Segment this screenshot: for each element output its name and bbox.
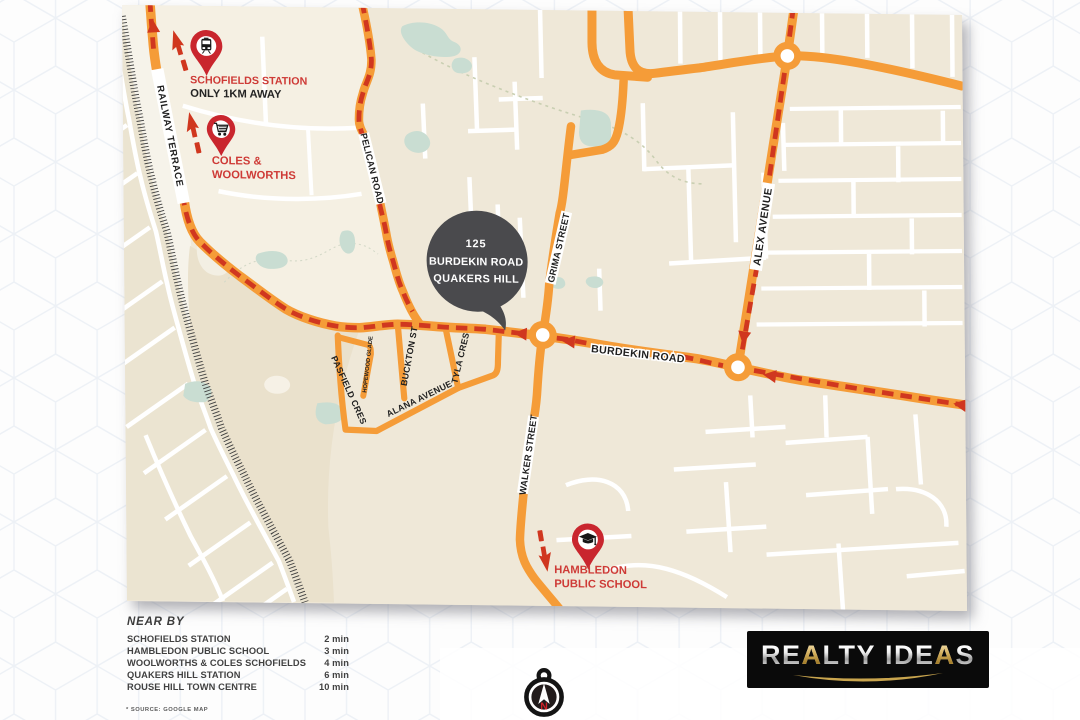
svg-text:WOOLWORTHS: WOOLWORTHS (212, 169, 297, 182)
svg-text:SCHOFIELDS STATION: SCHOFIELDS STATION (190, 74, 307, 87)
svg-text:COLES &: COLES & (212, 155, 262, 168)
svg-text:PUBLIC SCHOOL: PUBLIC SCHOOL (554, 578, 647, 591)
svg-text:HAMBLEDON: HAMBLEDON (554, 564, 627, 577)
svg-text:BURDEKIN ROAD: BURDEKIN ROAD (429, 256, 523, 269)
svg-text:125: 125 (466, 238, 487, 250)
svg-text:ONLY 1KM AWAY: ONLY 1KM AWAY (190, 88, 282, 101)
svg-text:QUAKERS HILL: QUAKERS HILL (433, 273, 519, 286)
svg-text:N: N (540, 701, 548, 713)
